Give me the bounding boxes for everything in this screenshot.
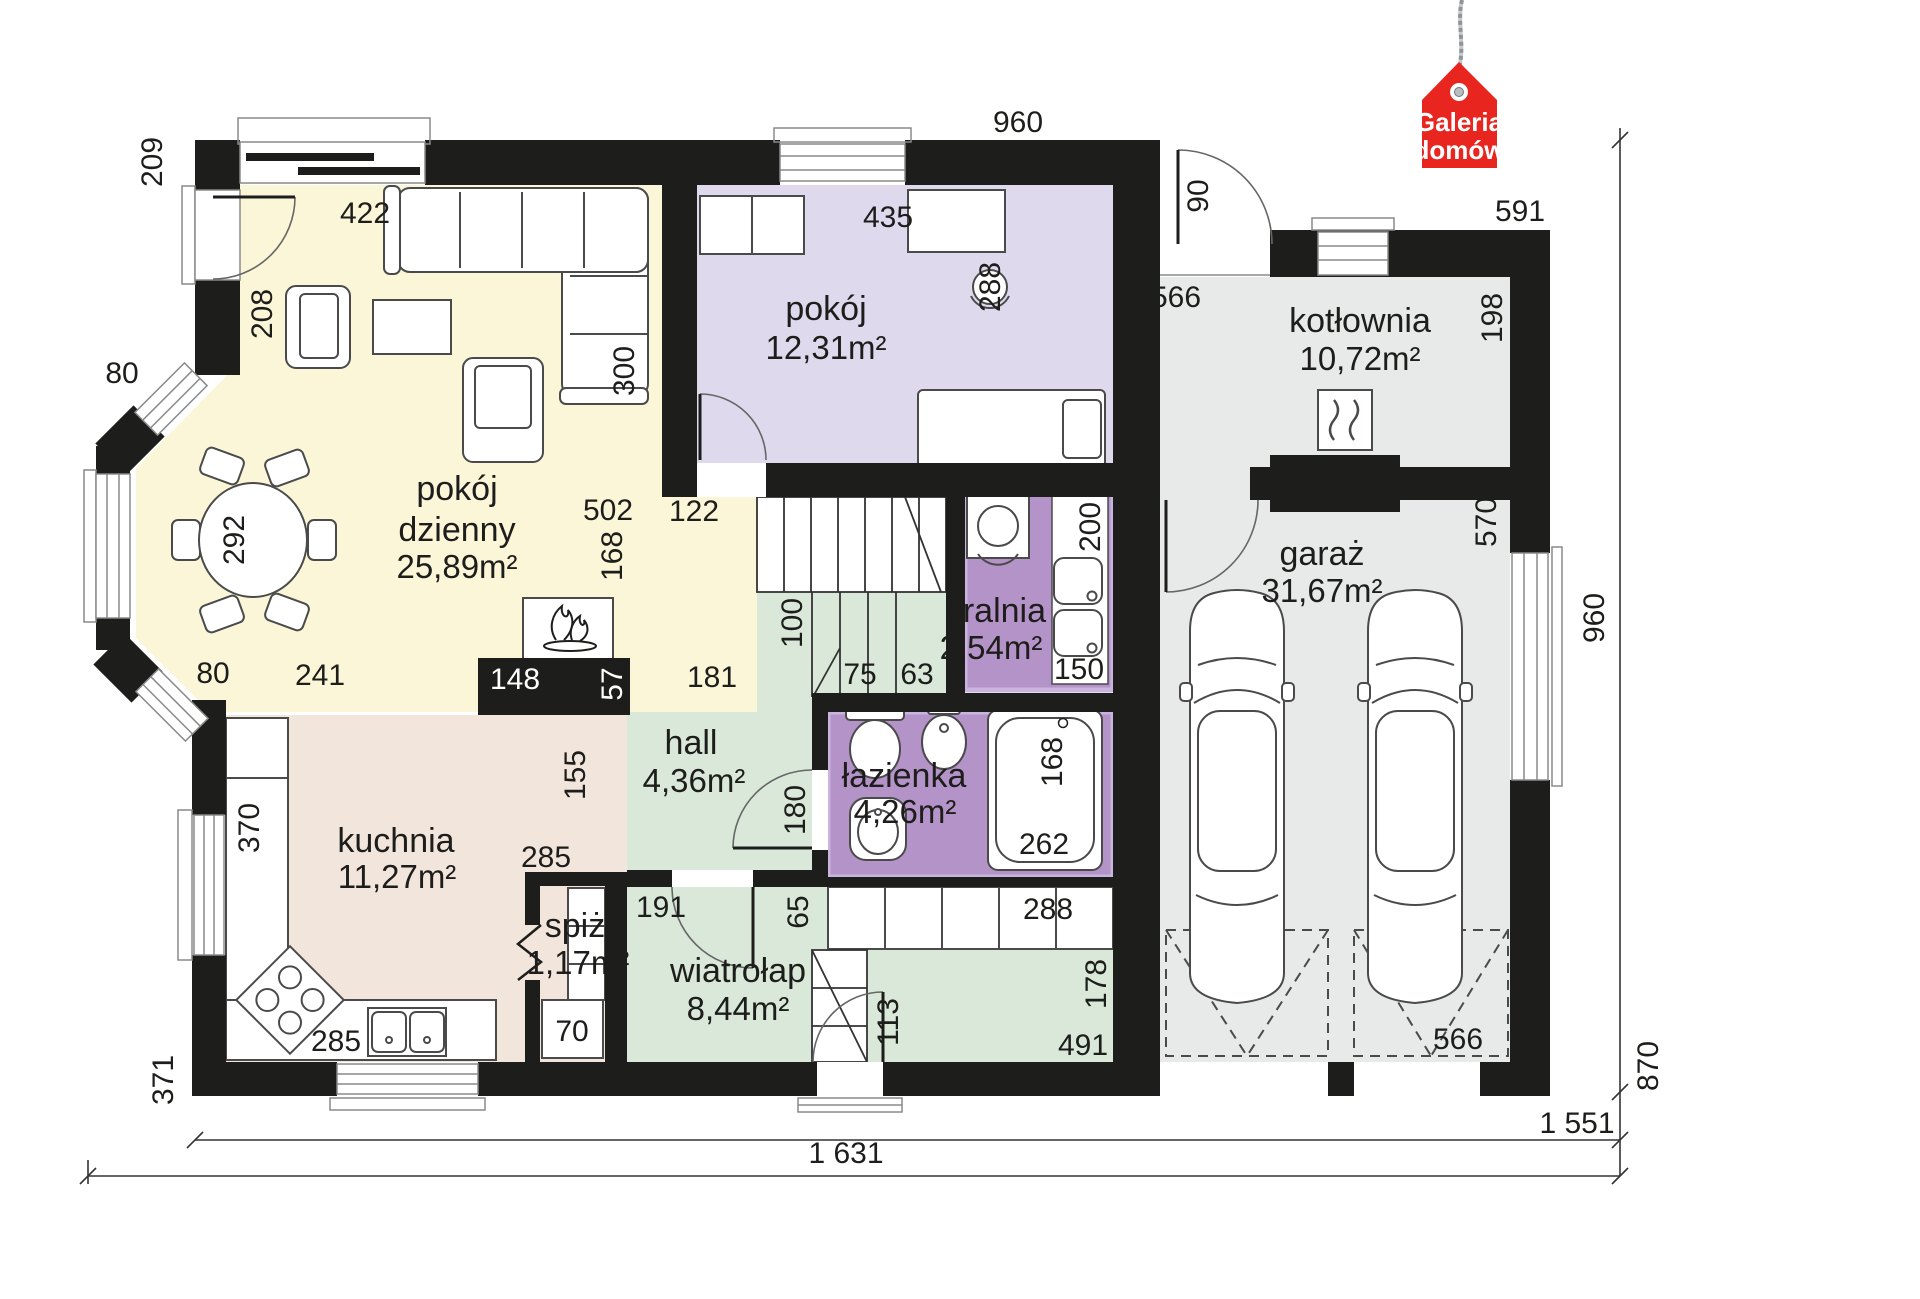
dim-168-tub: 168 bbox=[1036, 737, 1069, 787]
fireplace bbox=[523, 598, 613, 660]
dim-75: 75 bbox=[843, 658, 876, 691]
garage-area: 31,67m² bbox=[1261, 572, 1382, 609]
garage-window bbox=[1512, 547, 1562, 786]
dim-178: 178 bbox=[1080, 959, 1113, 1009]
kitchen-side-window bbox=[178, 810, 224, 960]
floor-plan: 422 435 960 591 566 80 80 241 181 502 12… bbox=[0, 0, 1920, 1299]
dim-208: 208 bbox=[246, 289, 279, 339]
dim-300: 300 bbox=[608, 346, 641, 396]
dim-285-kitchen: 285 bbox=[311, 1025, 361, 1058]
boiler-icon bbox=[1318, 390, 1372, 450]
kitchen-sink bbox=[368, 1008, 446, 1056]
coffee-table bbox=[373, 300, 451, 354]
dim-65: 65 bbox=[782, 895, 815, 928]
dim-63: 63 bbox=[900, 658, 933, 691]
dim-870: 870 bbox=[1632, 1041, 1665, 1091]
pantry-area: 1,17m² bbox=[527, 944, 630, 981]
dim-288-wardrobe: 288 bbox=[1023, 893, 1073, 926]
dim-566-top: 566 bbox=[1151, 281, 1201, 314]
bathroom-label: łazienka bbox=[842, 757, 967, 795]
dim-200: 200 bbox=[1074, 502, 1107, 552]
dim-57: 57 bbox=[596, 667, 629, 700]
dim-491: 491 bbox=[1058, 1029, 1108, 1062]
dim-168-living: 168 bbox=[596, 531, 629, 581]
dim-262: 262 bbox=[1019, 828, 1069, 861]
dim-591: 591 bbox=[1495, 195, 1545, 228]
dim-422: 422 bbox=[340, 197, 390, 230]
laundry-label: pralnia bbox=[944, 592, 1046, 630]
vestibule-steps bbox=[812, 950, 867, 1062]
living-room-area: 25,89m² bbox=[396, 548, 517, 585]
pantry-label: spiż bbox=[545, 907, 605, 945]
boiler-room-label: kotłownia bbox=[1289, 302, 1431, 340]
washing-machine bbox=[967, 494, 1029, 565]
logo-text-line1: Galeria bbox=[1415, 107, 1504, 137]
dim-285-pantry: 285 bbox=[521, 841, 571, 874]
left-terrace-door-frame bbox=[182, 186, 240, 284]
laundry-area: 2,54m² bbox=[940, 629, 1043, 666]
bedroom-wardrobe bbox=[700, 196, 804, 254]
bed bbox=[918, 390, 1105, 468]
boiler-room-area: 10,72m² bbox=[1299, 340, 1420, 377]
hall-label: hall bbox=[665, 724, 718, 762]
dim-371: 371 bbox=[147, 1055, 180, 1105]
dim-80-lower: 80 bbox=[196, 657, 229, 690]
kitchen-bottom-window bbox=[330, 1064, 485, 1110]
dim-90: 90 bbox=[1182, 179, 1215, 212]
dim-960-right: 960 bbox=[1578, 593, 1611, 643]
logo-grommet-hole bbox=[1455, 88, 1464, 97]
logo: Galeria domów bbox=[1414, 0, 1506, 168]
dim-150: 150 bbox=[1054, 653, 1104, 686]
armchair bbox=[286, 286, 350, 368]
dim-1551: 1 551 bbox=[1539, 1107, 1614, 1140]
dim-502: 502 bbox=[583, 494, 633, 527]
dim-198: 198 bbox=[1476, 293, 1509, 343]
dim-155: 155 bbox=[559, 750, 592, 800]
logo-text-line2: domów bbox=[1414, 135, 1506, 165]
vestibule-area: 8,44m² bbox=[687, 990, 790, 1027]
kitchen-label: kuchnia bbox=[337, 822, 454, 860]
dim-370: 370 bbox=[233, 803, 266, 853]
dim-288-bedroom: 288 bbox=[974, 262, 1007, 312]
hall-door-gap bbox=[672, 870, 753, 887]
hall-area: 4,36m² bbox=[643, 762, 746, 799]
dim-292: 292 bbox=[218, 515, 251, 565]
dim-191: 191 bbox=[636, 891, 686, 924]
dim-241: 241 bbox=[295, 659, 345, 692]
terrace-sliding-door bbox=[238, 118, 430, 183]
dim-566-garage: 566 bbox=[1433, 1023, 1483, 1056]
vestibule-label: wiatrołap bbox=[669, 952, 806, 990]
dim-100: 100 bbox=[776, 598, 809, 648]
desk bbox=[908, 190, 1005, 252]
bedroom-label: pokój bbox=[785, 290, 866, 328]
dim-148: 148 bbox=[490, 663, 540, 696]
bay-window-front bbox=[84, 470, 130, 622]
dim-122: 122 bbox=[669, 495, 719, 528]
living-room-label: pokój bbox=[416, 470, 497, 508]
bedroom-area: 12,31m² bbox=[765, 329, 886, 366]
garage-label: garaż bbox=[1279, 535, 1364, 573]
dim-435: 435 bbox=[863, 201, 913, 234]
boiler-room-window bbox=[1312, 218, 1394, 275]
bathroom-area: 4,26m² bbox=[854, 793, 957, 830]
bedroom-window bbox=[774, 128, 911, 181]
armchair bbox=[463, 358, 543, 462]
dim-180: 180 bbox=[779, 785, 812, 835]
living-room-label2: dzienny bbox=[398, 511, 515, 549]
dim-80-upper: 80 bbox=[105, 357, 138, 390]
dim-570: 570 bbox=[1470, 497, 1503, 547]
bathroom-door-gap bbox=[812, 770, 828, 850]
dim-113: 113 bbox=[872, 998, 905, 1046]
dim-181: 181 bbox=[687, 661, 737, 694]
dim-70: 70 bbox=[555, 1015, 588, 1048]
dim-209: 209 bbox=[136, 137, 169, 187]
bedroom-door-gap bbox=[697, 463, 766, 497]
dim-1631: 1 631 bbox=[808, 1137, 883, 1170]
dim-960-top: 960 bbox=[993, 106, 1043, 139]
floor-plan-page: 422 435 960 591 566 80 80 241 181 502 12… bbox=[0, 0, 1920, 1299]
kitchen-area: 11,27m² bbox=[338, 858, 457, 895]
